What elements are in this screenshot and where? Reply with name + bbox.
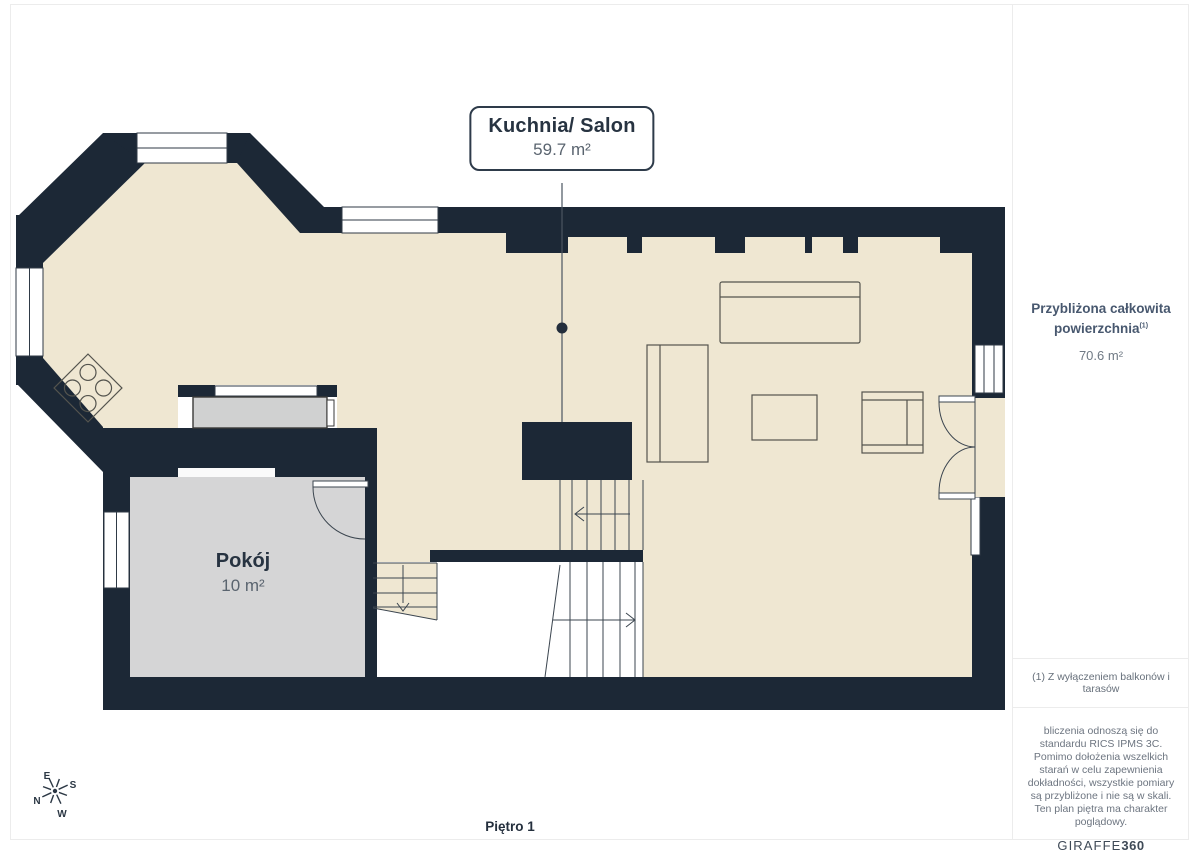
sidebar: Przybliżona całkowita powierzchnia(1) 70… <box>1012 4 1189 840</box>
right-window <box>975 345 1003 393</box>
room-name: Pokój <box>216 550 270 573</box>
disclaimer-panel: bliczenia odnoszą się do standardu RICS … <box>1013 707 1189 840</box>
room-callout-kuchnia-salon: Kuchnia/ Salon 59.7 m² <box>469 106 654 171</box>
total-area-title-text: Przybliżona całkowita powierzchnia <box>1031 301 1171 336</box>
logo-secondary: 360 <box>1121 838 1144 853</box>
compass-north: N <box>33 796 40 807</box>
total-area-value: 70.6 m² <box>1079 348 1123 363</box>
footnote-ref: (1) <box>1139 323 1148 330</box>
pokoj-wall-niche <box>178 468 275 477</box>
room-name: Kuchnia/ Salon <box>488 115 635 138</box>
top-wall-niches <box>568 237 940 253</box>
room-label-pokoj: Pokój 10 m² <box>216 550 270 596</box>
left-window <box>16 268 43 356</box>
pokoj-window <box>104 512 129 588</box>
floor-label: Piętro 1 <box>485 819 535 834</box>
disclaimer-text: bliczenia odnoszą się do standardu RICS … <box>1013 725 1189 829</box>
sidelight-window <box>971 497 980 555</box>
area-dot <box>557 323 568 334</box>
logo-primary: GIRAFFE <box>1057 838 1121 853</box>
room-area: 59.7 m² <box>488 140 635 160</box>
top-window <box>342 207 438 233</box>
room-area: 10 m² <box>216 576 270 596</box>
compass: E S N W <box>33 771 76 820</box>
compass-east: E <box>44 771 51 782</box>
giraffe360-logo: GIRAFFE360 <box>1057 838 1144 853</box>
footnote-text: (1) Z wyłączeniem balkonów i tarasów <box>1021 671 1181 695</box>
total-area-title: Przybliżona całkowita powierzchnia(1) <box>1013 299 1189 340</box>
compass-west: W <box>57 809 67 820</box>
compass-south: S <box>70 780 77 791</box>
footnote-panel: (1) Z wyłączeniem balkonów i tarasów <box>1013 658 1189 707</box>
bay-window <box>137 133 227 163</box>
total-area-panel: Przybliżona całkowita powierzchnia(1) 70… <box>1013 4 1189 658</box>
